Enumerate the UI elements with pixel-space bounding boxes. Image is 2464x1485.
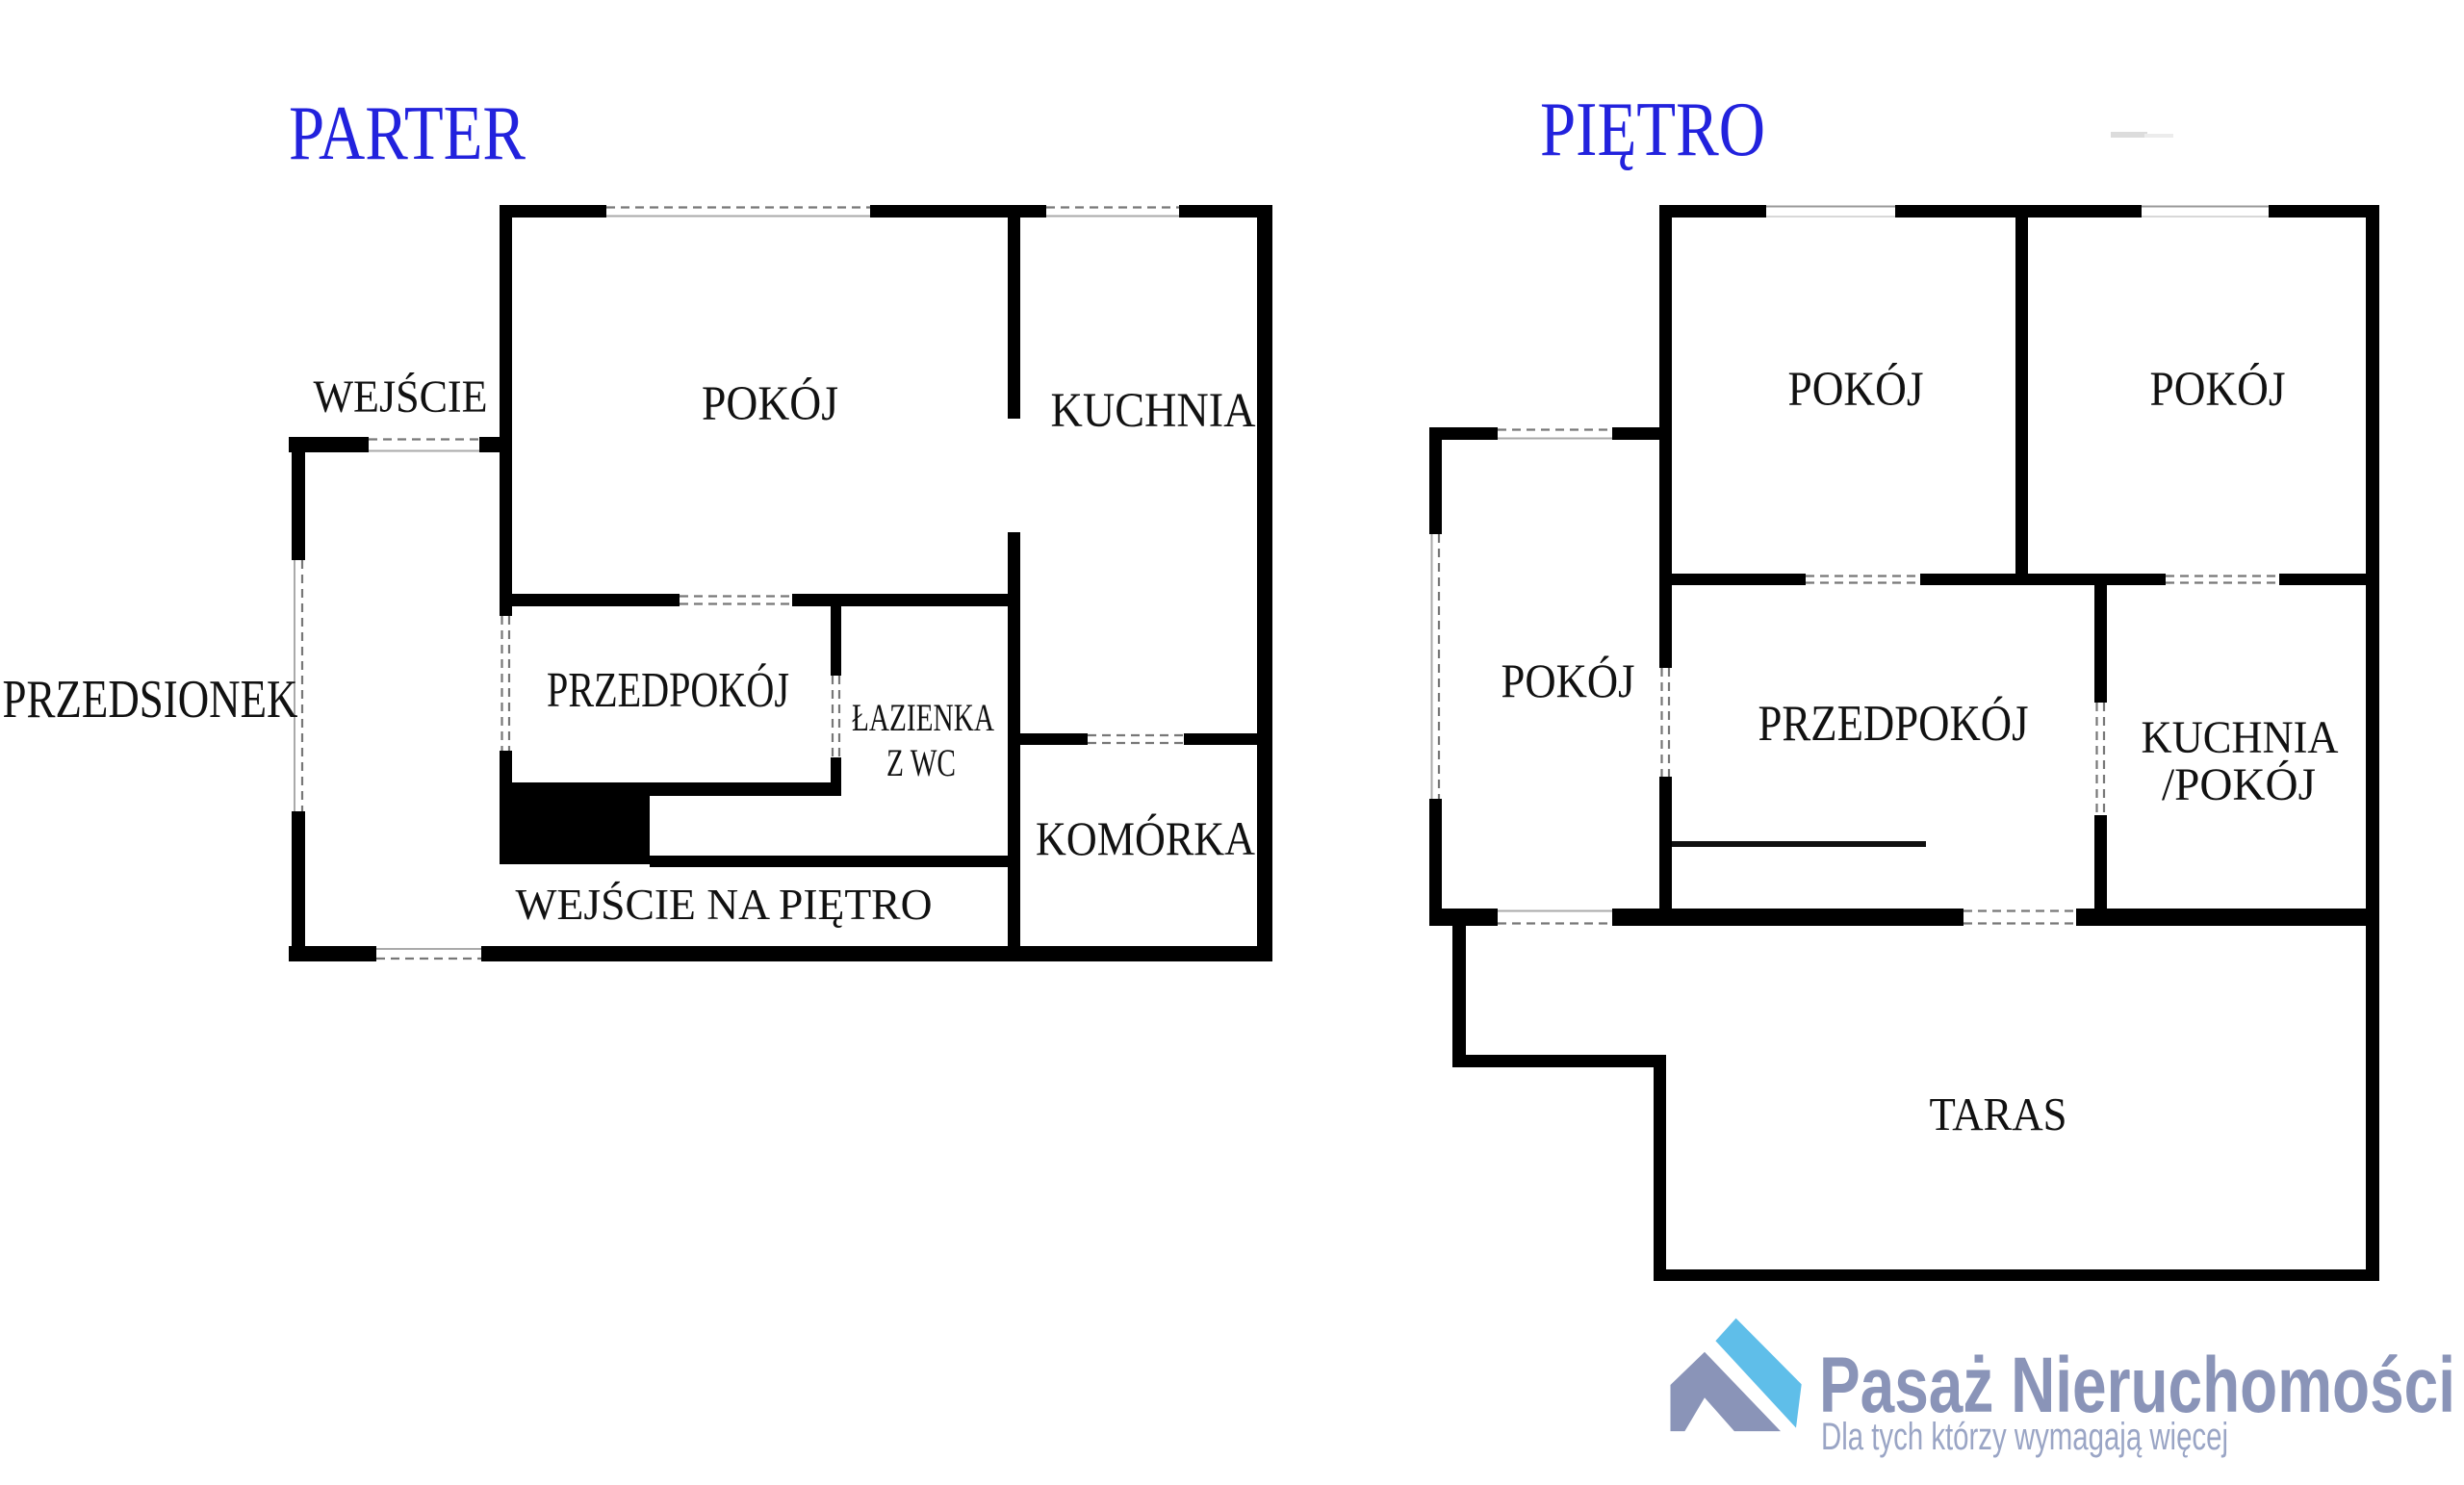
svg-text:Z WC: Z WC bbox=[886, 741, 956, 784]
svg-text:PIĘTRO: PIĘTRO bbox=[1540, 88, 1765, 172]
svg-text:KOMÓRKA: KOMÓRKA bbox=[1036, 811, 1255, 865]
svg-text:Dla tych którzy wymagają więce: Dla tych którzy wymagają więcej bbox=[1821, 1416, 2228, 1458]
svg-text:POKÓJ: POKÓJ bbox=[1501, 653, 1635, 707]
svg-text:POKÓJ: POKÓJ bbox=[2150, 363, 2286, 417]
svg-text:POKÓJ: POKÓJ bbox=[702, 377, 838, 431]
svg-text:TARAS: TARAS bbox=[1930, 1088, 2067, 1140]
svg-text:PRZEDSIONEK: PRZEDSIONEK bbox=[3, 670, 298, 730]
svg-text:KUCHNIA: KUCHNIA bbox=[1051, 384, 1256, 438]
svg-text:WEJŚCIE NA PIĘTRO: WEJŚCIE NA PIĘTRO bbox=[516, 881, 933, 929]
svg-text:/POKÓJ: /POKÓJ bbox=[2162, 758, 2316, 810]
svg-text:PRZEDPOKÓJ: PRZEDPOKÓJ bbox=[547, 662, 789, 718]
svg-text:ŁAZIENKA: ŁAZIENKA bbox=[852, 696, 994, 739]
svg-text:PARTER: PARTER bbox=[289, 91, 526, 176]
svg-text:KUCHNIA: KUCHNIA bbox=[2142, 712, 2339, 763]
svg-text:PRZEDPOKÓJ: PRZEDPOKÓJ bbox=[1758, 696, 2029, 752]
svg-text:POKÓJ: POKÓJ bbox=[1788, 363, 1924, 417]
svg-text:WEJŚCIE: WEJŚCIE bbox=[314, 371, 488, 422]
